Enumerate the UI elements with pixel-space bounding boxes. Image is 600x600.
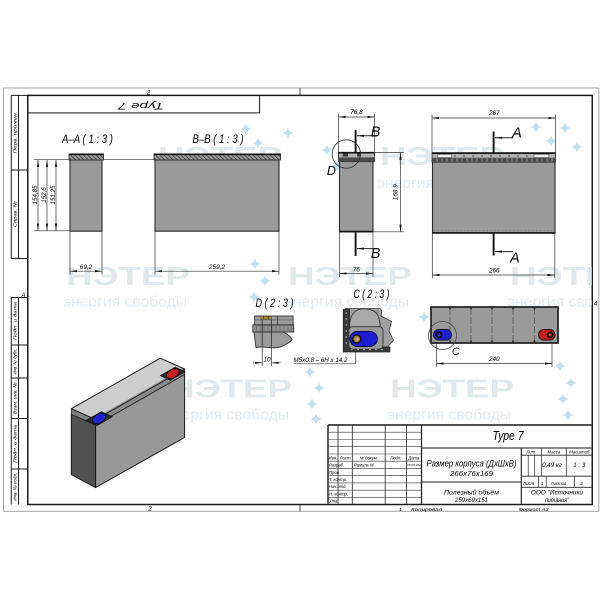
- svg-text:Подп. и дата: Подп. и дата: [12, 424, 18, 462]
- svg-text:Т. контр.: Т. контр.: [329, 477, 347, 482]
- svg-text:Взам. инв. №: Взам. инв. №: [12, 382, 18, 414]
- svg-text:НЭТЕР: НЭТЕР: [288, 261, 412, 291]
- svg-text:Формат А3: Формат А3: [519, 507, 549, 513]
- svg-text:Лист: Лист: [522, 481, 534, 486]
- svg-text:76,8: 76,8: [350, 109, 363, 116]
- svg-text:Масса: Масса: [548, 450, 561, 455]
- svg-text:Подп.: Подп.: [390, 455, 401, 460]
- svg-text:1 : 3: 1 : 3: [573, 462, 586, 469]
- svg-text:2: 2: [147, 506, 152, 513]
- svg-text:267: 267: [488, 110, 500, 117]
- svg-text:Н. контр.: Н. контр.: [329, 491, 348, 496]
- svg-text:Пров.: Пров.: [329, 470, 340, 475]
- svg-text:Разраб.: Разраб.: [329, 463, 344, 468]
- svg-text:Полезный объём: Полезный объём: [444, 488, 499, 496]
- svg-text:Лист: Лист: [339, 455, 351, 460]
- svg-text:НЭТЕР: НЭТЕР: [390, 374, 514, 404]
- svg-text:69,2: 69,2: [80, 264, 93, 271]
- svg-text:Инв. № дубл.: Инв. № дубл.: [12, 349, 18, 375]
- svg-text:НЭТЕР: НЭТЕР: [168, 374, 292, 404]
- svg-text:B–B ( 1 : 3 ): B–B ( 1 : 3 ): [193, 132, 244, 146]
- svg-text:A–A ( 1 : 3 ): A–A ( 1 : 3 ): [61, 132, 113, 146]
- svg-text:D ( 2 : 3 ): D ( 2 : 3 ): [256, 296, 294, 310]
- svg-text:151,25: 151,25: [50, 185, 57, 204]
- svg-text:09.08.2021: 09.08.2021: [407, 463, 423, 467]
- svg-text:энергия свободы: энергия свободы: [63, 294, 187, 311]
- svg-text:259х69х151: 259х69х151: [454, 497, 488, 504]
- svg-text:Type 7: Type 7: [116, 101, 164, 111]
- svg-text:Размер корпуса (ДхШхВ): Размер корпуса (ДхШхВ): [427, 459, 517, 469]
- svg-text:Type 7: Type 7: [493, 429, 525, 443]
- svg-text:Перв. примен.: Перв. примен.: [12, 112, 18, 154]
- svg-text:152,6: 152,6: [41, 187, 48, 203]
- svg-text:№ докум.: № докум.: [359, 455, 377, 460]
- svg-text:A: A: [509, 250, 520, 266]
- svg-text:B: B: [371, 125, 381, 141]
- svg-text:Инв. № подл.: Инв. № подл.: [12, 473, 18, 501]
- svg-text:C ( 2 : 3 ): C ( 2 : 3 ): [354, 287, 390, 301]
- svg-text:259,2: 259,2: [208, 264, 225, 271]
- svg-text:Листов: Листов: [550, 481, 567, 486]
- svg-text:Лит.: Лит.: [525, 450, 536, 455]
- svg-text:10: 10: [263, 357, 271, 364]
- svg-text:0,49 кг: 0,49 кг: [542, 462, 562, 469]
- svg-text:154,85: 154,85: [32, 185, 39, 204]
- svg-text:ООО "Источники: ООО "Источники: [531, 489, 583, 496]
- svg-text:Нач.отд.: Нач.отд.: [329, 484, 347, 489]
- svg-text:76: 76: [353, 266, 361, 273]
- svg-text:168,9: 168,9: [393, 184, 400, 200]
- svg-text:M5x0.8 – 6H x 14,2: M5x0.8 – 6H x 14,2: [294, 357, 348, 364]
- svg-text:Утв.: Утв.: [329, 499, 339, 504]
- svg-text:D: D: [327, 164, 336, 178]
- svg-text:энергия свободы: энергия свободы: [387, 407, 511, 424]
- svg-text:Копировал: Копировал: [411, 507, 442, 513]
- svg-text:C: C: [452, 346, 460, 358]
- svg-text:A: A: [20, 293, 25, 299]
- svg-text:Дата: Дата: [407, 455, 420, 460]
- svg-text:Масштаб: Масштаб: [569, 450, 590, 455]
- svg-text:Рамиль М.: Рамиль М.: [354, 463, 375, 468]
- svg-text:2: 2: [146, 90, 151, 97]
- svg-text:A: A: [511, 126, 522, 142]
- svg-text:266: 266: [488, 268, 500, 275]
- svg-text:энергия свободы: энергия свободы: [285, 294, 409, 311]
- svg-text:Справ. №: Справ. №: [12, 201, 18, 227]
- svg-text:Изм.: Изм.: [329, 455, 338, 460]
- svg-text:питания": питания": [545, 497, 569, 504]
- svg-text:Подп. и дата: Подп. и дата: [12, 302, 18, 340]
- svg-text:1: 1: [399, 507, 402, 513]
- svg-text:B: B: [371, 246, 381, 262]
- svg-text:240: 240: [488, 356, 500, 363]
- svg-text:266х76х169: 266х76х169: [449, 469, 494, 478]
